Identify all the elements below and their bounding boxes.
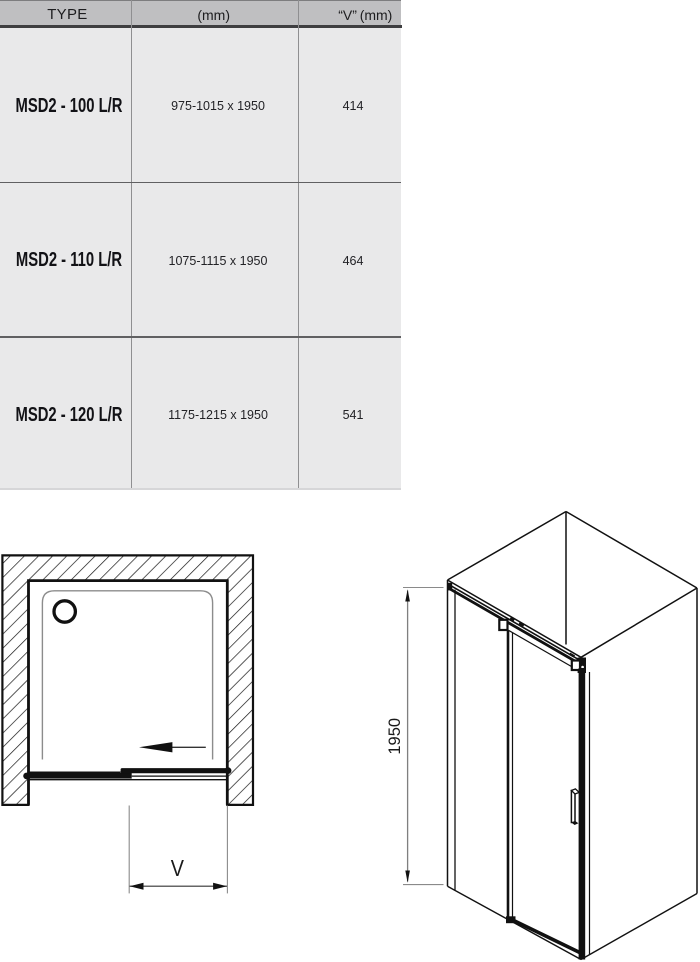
svg-text:V: V [171, 856, 185, 882]
svg-text:1950: 1950 [386, 718, 404, 755]
